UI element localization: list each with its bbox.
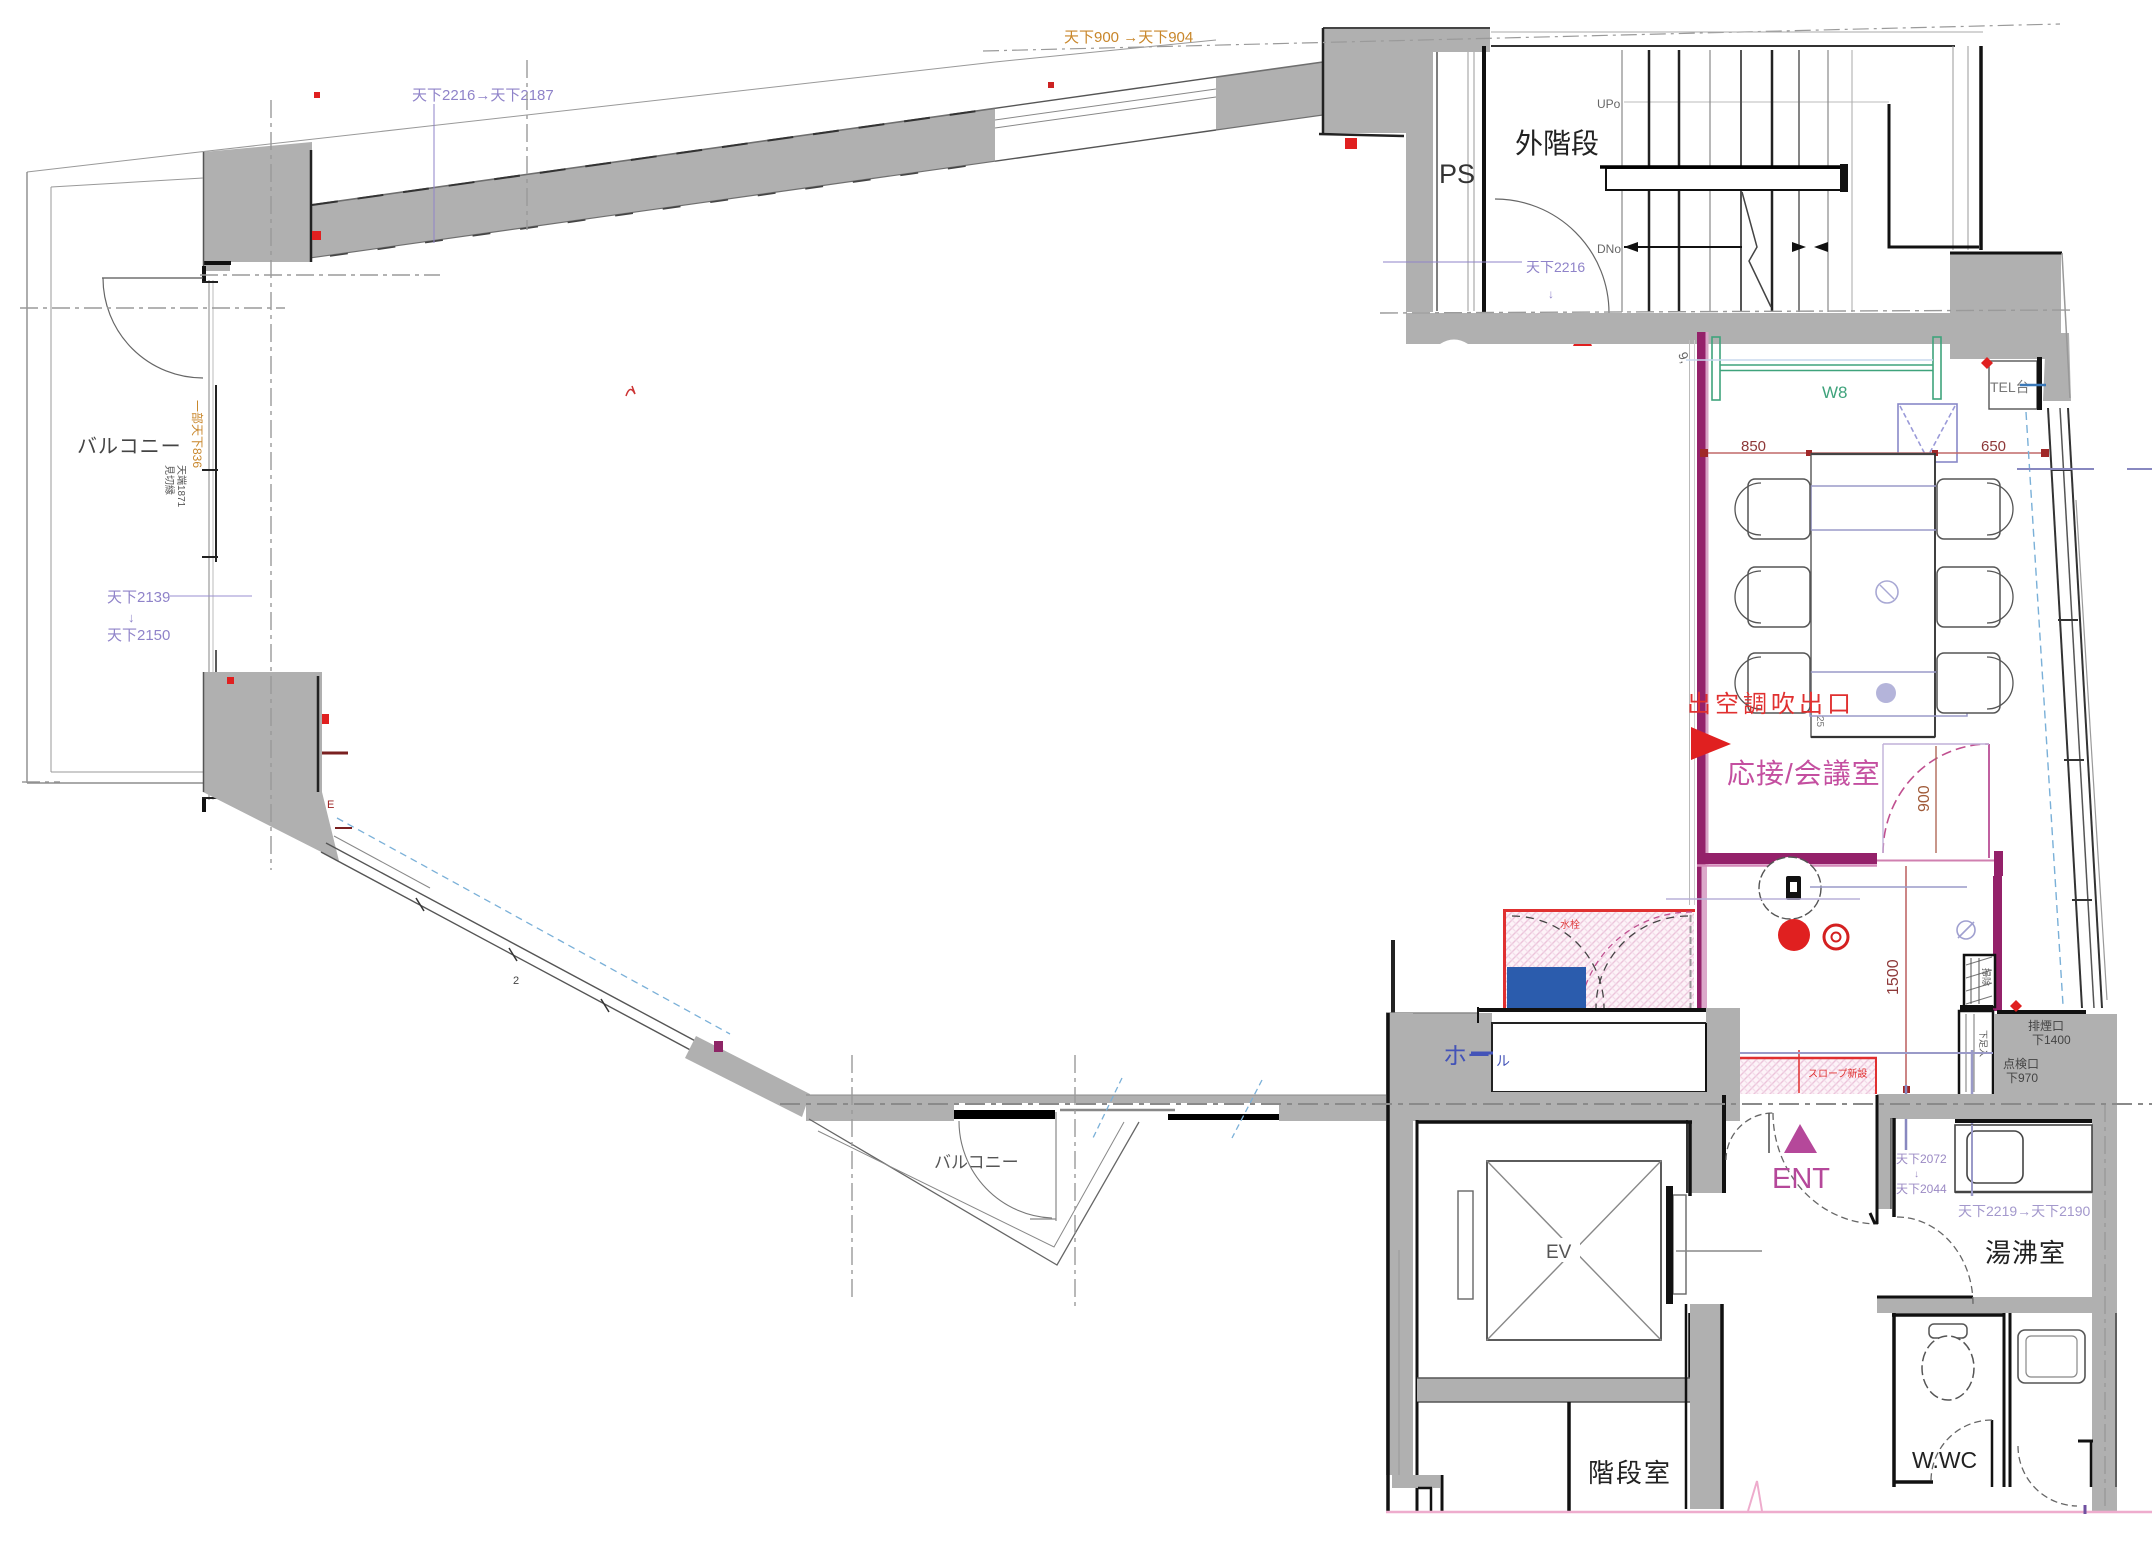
svg-text:見切縁: 見切縁 bbox=[163, 465, 176, 495]
svg-text:ホー: ホー bbox=[1443, 1043, 1491, 1070]
svg-text:850: 850 bbox=[1741, 438, 1766, 455]
svg-text:天端1871: 天端1871 bbox=[175, 465, 188, 508]
svg-text:W8: W8 bbox=[1822, 383, 1848, 402]
svg-text:天下2150: 天下2150 bbox=[107, 627, 170, 644]
svg-text:PS: PS bbox=[1439, 159, 1475, 189]
svg-text:W.WC: W.WC bbox=[1912, 1447, 1977, 1473]
svg-text:DNo: DNo bbox=[1597, 242, 1621, 256]
svg-text:2: 2 bbox=[513, 975, 519, 987]
svg-text:天下2216→天下2187: 天下2216→天下2187 bbox=[412, 87, 554, 104]
svg-text:湯沸室: 湯沸室 bbox=[1985, 1238, 2066, 1268]
svg-text:天下2072: 天下2072 bbox=[1896, 1152, 1947, 1166]
svg-text:EV: EV bbox=[1546, 1242, 1572, 1263]
svg-text:↓: ↓ bbox=[128, 610, 135, 625]
svg-text:一部天下836: 一部天下836 bbox=[190, 400, 205, 468]
svg-text:天下2216: 天下2216 bbox=[1526, 259, 1585, 275]
svg-text:バルコニー: バルコニー bbox=[934, 1153, 1019, 1172]
svg-text:ル: ル bbox=[1496, 1053, 1510, 1069]
svg-text:1500: 1500 bbox=[1885, 959, 1902, 995]
svg-text:応接/会議室: 応接/会議室 bbox=[1727, 758, 1881, 789]
svg-text:排煙口: 排煙口 bbox=[2028, 1019, 2064, 1033]
svg-text:650: 650 bbox=[1981, 438, 2006, 455]
svg-text:ENT: ENT bbox=[1772, 1163, 1830, 1195]
svg-text:出空調吹出口: 出空調吹出口 bbox=[1687, 691, 1855, 718]
svg-text:天下2044: 天下2044 bbox=[1896, 1182, 1947, 1196]
svg-text:スロープ新設: スロープ新設 bbox=[1808, 1067, 1867, 1080]
svg-text:↓: ↓ bbox=[1914, 1169, 1919, 1180]
svg-text:点検口: 点検口 bbox=[2003, 1057, 2039, 1071]
svg-text:階段室: 階段室 bbox=[1588, 1458, 1672, 1488]
svg-text:900: 900 bbox=[1916, 785, 1933, 812]
svg-text:TEL台: TEL台 bbox=[1990, 379, 2030, 395]
svg-text:掃除: 掃除 bbox=[1981, 968, 1992, 986]
svg-text:天下900 →天下904: 天下900 →天下904 bbox=[1064, 29, 1193, 46]
svg-text:↓: ↓ bbox=[1548, 287, 1554, 301]
svg-text:水栓: 水栓 bbox=[1560, 918, 1580, 931]
svg-text:UPo: UPo bbox=[1597, 97, 1621, 111]
svg-text:下1400: 下1400 bbox=[2032, 1033, 2071, 1047]
svg-text:外階段: 外階段 bbox=[1515, 128, 1599, 159]
svg-text:天下2219→天下2190: 天下2219→天下2190 bbox=[1958, 1203, 2091, 1219]
svg-text:E: E bbox=[327, 799, 334, 811]
svg-text:下970: 下970 bbox=[2006, 1071, 2038, 1085]
svg-text:天下2139: 天下2139 bbox=[107, 589, 170, 606]
svg-text:バルコニー: バルコニー bbox=[77, 436, 182, 458]
